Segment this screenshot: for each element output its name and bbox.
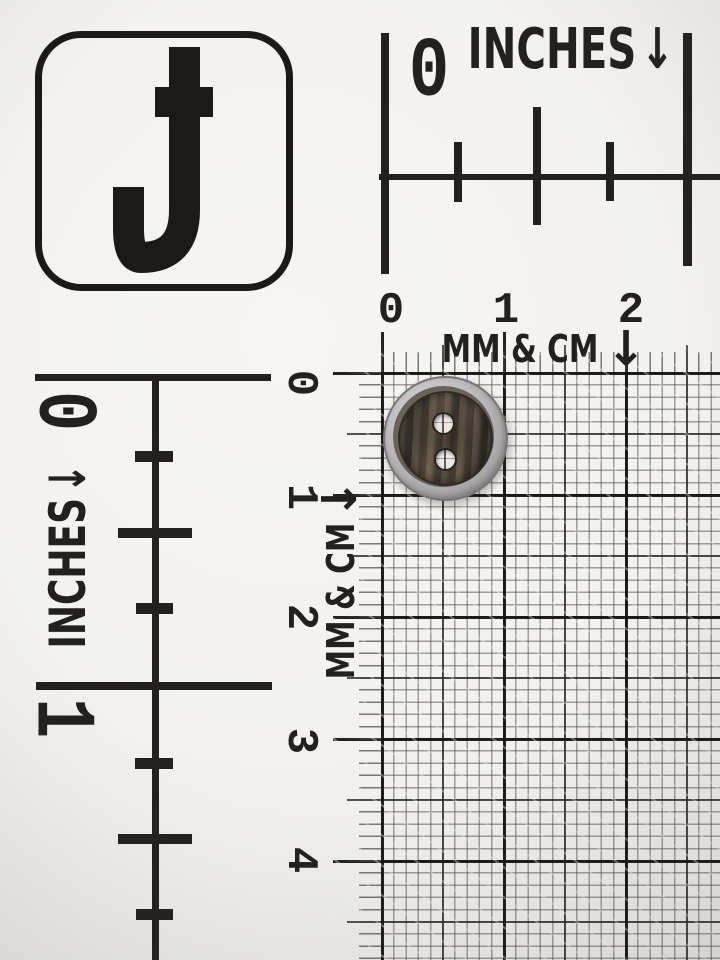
inch-left-one-label: 1 <box>13 698 108 738</box>
down-arrow-icon: ↓ <box>641 17 675 82</box>
button-hole-bottom <box>434 448 457 471</box>
inch-top-unit-label: INCHES↓ <box>468 22 675 78</box>
brand-logo-j-cross-icon <box>42 38 286 284</box>
metric-left-label-4: 4 <box>275 847 325 873</box>
inch-top-half-tick <box>533 107 541 225</box>
brand-logo-box <box>35 31 293 291</box>
inch-top-threequarter-tick <box>606 142 614 201</box>
inch-top-zero-line <box>381 33 389 274</box>
inches-text: INCHES <box>468 17 637 82</box>
inch-top-baseline <box>379 174 720 180</box>
metric-top-label-0: 0 <box>378 286 404 336</box>
metric-top-unit-label: MM & CM <box>442 330 599 368</box>
inch-top-zero-label: 0 <box>409 26 449 121</box>
button-measurement-card-photo: 0 INCHES↓ 0 1 2 MM & CM ↓ 0 1 2 3 4 ↓ MM… <box>0 0 720 960</box>
button-hole-top <box>432 412 455 435</box>
inch-left-quarter-tick-1 <box>135 451 173 462</box>
inch-left-threequarter-tick-2 <box>136 909 173 920</box>
inch-top-quarter-tick <box>454 142 462 202</box>
inches-text-vertical: INCHES <box>39 498 97 649</box>
metric-left-label-3: 3 <box>275 728 325 754</box>
inch-left-half-tick-2 <box>118 834 192 844</box>
inch-left-unit-label: INCHES↓ <box>43 463 93 648</box>
button-face <box>398 391 493 486</box>
inch-left-threequarter-tick-1 <box>136 603 173 614</box>
metric-left-unit-label: MM & CM <box>322 523 360 680</box>
metric-left-label-0: 0 <box>275 370 325 396</box>
down-arrow-icon-vertical: ↓ <box>39 463 97 493</box>
metric-left-label-2: 2 <box>275 604 325 630</box>
metric-left-arrow-icon: ↓ <box>316 479 364 519</box>
inch-left-quarter-tick-2 <box>135 758 173 769</box>
inch-top-one-line <box>683 33 692 266</box>
inch-left-zero-label: 0 <box>15 391 110 431</box>
metric-top-down-arrow-icon: ↓ <box>606 325 646 373</box>
inch-left-baseline <box>152 377 159 960</box>
button-photo <box>383 376 508 501</box>
inch-left-one-line <box>36 682 272 690</box>
inch-left-half-tick-1 <box>118 528 192 538</box>
